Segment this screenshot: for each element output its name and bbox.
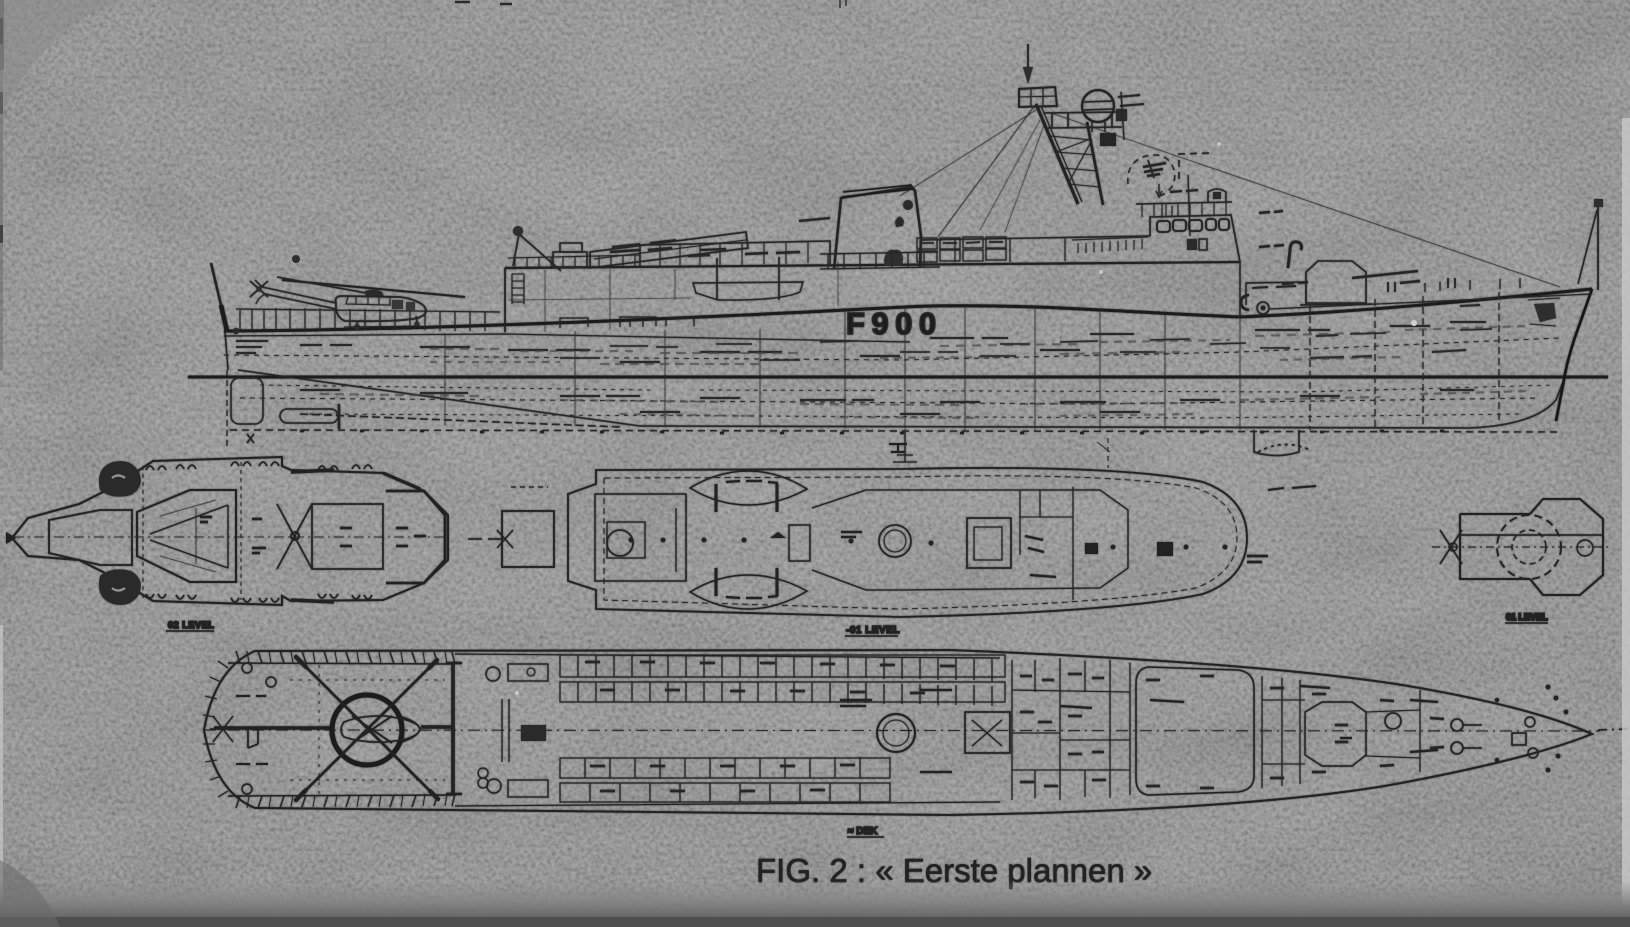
svg-text:F900: F900 — [846, 306, 943, 341]
svg-text:-01 LEVEL: -01 LEVEL — [846, 625, 900, 636]
svg-text:01 LEVEL: 01 LEVEL — [1506, 612, 1548, 622]
svg-text:≈ DEK: ≈ DEK — [848, 826, 878, 837]
svg-text:02 LEVEL: 02 LEVEL — [168, 620, 214, 630]
